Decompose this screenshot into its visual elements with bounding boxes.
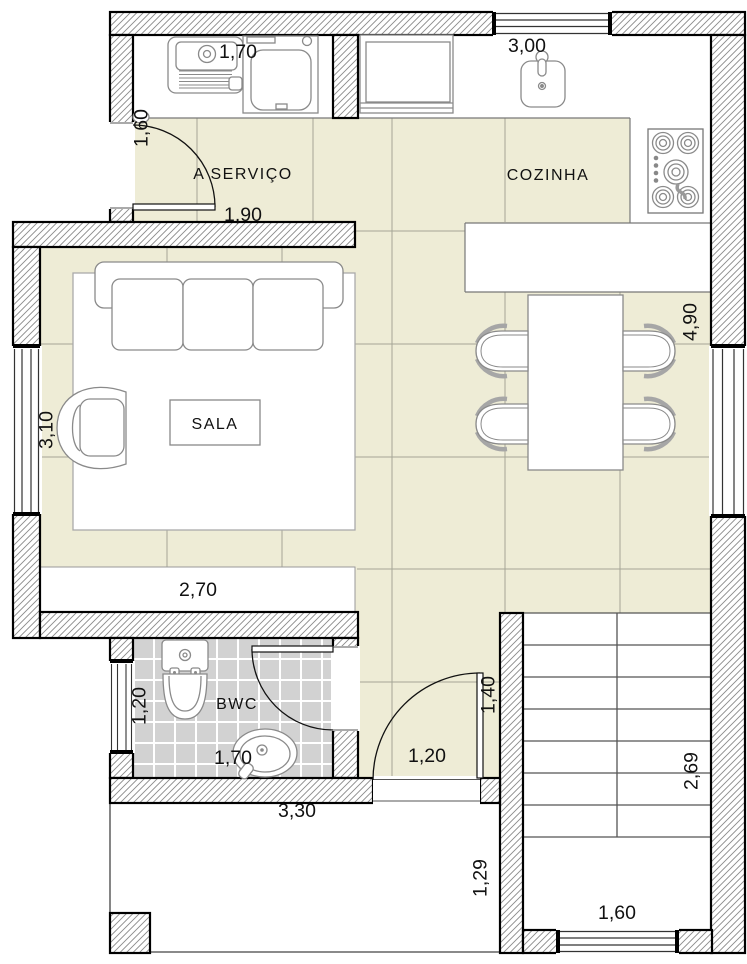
armchair — [57, 387, 126, 468]
dim-service-opening: 1,90 — [224, 204, 262, 226]
dim-porch-depth: 1,29 — [470, 859, 492, 897]
peninsula-counter — [465, 223, 711, 292]
stove — [648, 129, 703, 213]
room-label-kitchen: COZINHA — [507, 167, 590, 184]
porch-column — [110, 913, 150, 953]
wall-bathroom-bottom — [110, 778, 373, 803]
dim-stairs-depth: 2,69 — [681, 752, 703, 790]
dining-chair — [476, 326, 528, 376]
dim-bathroom-sink: 1,70 — [214, 747, 252, 769]
dim-living-width: 2,70 — [179, 579, 217, 601]
dim-entry-door: 1,40 — [478, 676, 500, 714]
wall-bathroom-top — [40, 612, 358, 638]
sofa — [95, 262, 343, 350]
toilet — [162, 640, 208, 719]
dim-bathroom-width: 3,30 — [278, 800, 316, 822]
wall-stairs-left — [500, 613, 523, 953]
dim-stairs-width: 1,60 — [598, 902, 636, 924]
dining-table — [528, 295, 623, 470]
wall-stairs-bottom-left — [523, 930, 558, 953]
porch — [110, 803, 500, 952]
dim-service-counter: 1,70 — [219, 41, 257, 63]
dim-hall-door: 1,20 — [408, 745, 446, 767]
dim-service-door: 1,60 — [131, 109, 153, 147]
dim-kitchen-width: 3,00 — [508, 35, 546, 57]
window-stairs — [556, 928, 679, 955]
wall-service-kitchen-stub — [333, 35, 358, 118]
room-label-living: SALA — [192, 416, 239, 433]
wall-entry-right — [480, 778, 500, 803]
floor-plan: A SERVIÇO COZINHA SALA BWC 1,70 3,00 1,6… — [0, 0, 747, 964]
porch-outline — [110, 803, 500, 952]
dim-kitchen-depth: 4,90 — [680, 303, 702, 341]
refrigerator — [360, 35, 453, 113]
dining-chair — [623, 326, 675, 376]
room-label-service: A SERVIÇO — [193, 166, 292, 183]
dining-chair — [623, 399, 675, 449]
dim-living-window: 3,10 — [36, 411, 58, 449]
room-label-bathroom: BWC — [216, 696, 258, 713]
dining-chair — [476, 399, 528, 449]
floor-plan-page: A SERVIÇO COZINHA SALA BWC 1,70 3,00 1,6… — [0, 0, 747, 964]
window-dining — [709, 344, 747, 518]
dim-bathroom-depth: 1,20 — [129, 687, 151, 725]
wall-living-top — [13, 222, 355, 247]
wall-stairs-bottom-right — [677, 930, 712, 953]
wall-top — [110, 12, 745, 35]
window-kitchen — [492, 10, 612, 37]
